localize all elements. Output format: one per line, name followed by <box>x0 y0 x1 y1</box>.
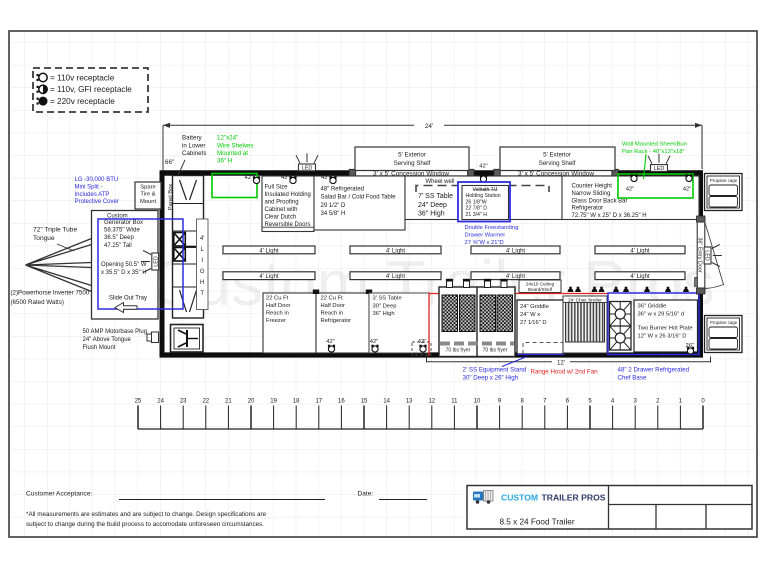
svg-text:66": 66" <box>165 159 174 166</box>
svg-text:Mount: Mount <box>140 199 157 205</box>
svg-text:5' Exterior: 5' Exterior <box>398 152 426 159</box>
svg-text:Serving Shelf: Serving Shelf <box>539 160 576 167</box>
svg-text:Wheel well: Wheel well <box>425 179 454 185</box>
svg-text:22: 22 <box>202 399 209 405</box>
svg-text:11: 11 <box>451 399 458 405</box>
svg-text:in Lower: in Lower <box>182 142 205 149</box>
svg-text:14: 14 <box>383 399 390 405</box>
svg-text:LED: LED <box>654 166 665 172</box>
svg-text:H: H <box>200 280 204 286</box>
svg-text:LED: LED <box>302 166 313 172</box>
svg-text:42": 42" <box>626 187 635 193</box>
svg-text:CUSTOM: CUSTOM <box>501 493 538 503</box>
svg-text:24' Char. broiler: 24' Char. broiler <box>568 297 602 303</box>
svg-text:Serving Shelf: Serving Shelf <box>394 160 431 167</box>
svg-text:12: 12 <box>428 399 435 405</box>
svg-text:= 110v, GFI receptacle: = 110v, GFI receptacle <box>50 85 132 94</box>
svg-text:23: 23 <box>180 399 187 405</box>
svg-text:Mounted at: Mounted at <box>217 150 248 157</box>
svg-text:LED: LED <box>153 256 159 267</box>
svg-text:Freezer: Freezer <box>266 318 286 324</box>
svg-text:18: 18 <box>293 399 300 405</box>
svg-text:36" Entry Door: 36" Entry Door <box>697 237 703 272</box>
svg-text:42": 42" <box>321 175 330 181</box>
svg-text:3' SS Table: 3' SS Table <box>373 295 402 301</box>
svg-text:22 7/8" D: 22 7/8" D <box>466 206 488 212</box>
svg-text:x 35.5" D x 35" H: x 35.5" D x 35" H <box>101 270 147 276</box>
svg-text:Spare: Spare <box>140 184 155 190</box>
svg-text:8.5 x 24 Food Trailer: 8.5 x 24 Food Trailer <box>499 518 574 527</box>
svg-text:4' Light: 4' Light <box>259 274 278 280</box>
svg-text:12': 12' <box>557 359 565 366</box>
svg-text:Cabinet with: Cabinet with <box>265 207 298 213</box>
svg-text:Generator Box: Generator Box <box>104 220 143 226</box>
svg-text:LG -30,000 BTU: LG -30,000 BTU <box>75 177 119 183</box>
svg-text:30" Deep: 30" Deep <box>373 303 397 309</box>
svg-text:Clear Dutch: Clear Dutch <box>265 215 297 221</box>
svg-text:4' Light: 4' Light <box>386 274 405 280</box>
svg-text:36" High: 36" High <box>373 311 395 317</box>
svg-text:72" Triple Tube: 72" Triple Tube <box>33 227 77 234</box>
svg-text:T: T <box>200 291 204 297</box>
svg-text:(2)Powerhorse Inverter 7500: (2)Powerhorse Inverter 7500 <box>11 290 90 297</box>
svg-text:2' SS Equipment Stand: 2' SS Equipment Stand <box>463 367 527 374</box>
svg-text:and Proofing: and Proofing <box>265 200 299 206</box>
svg-text:= 110v receptacle: = 110v receptacle <box>50 73 115 82</box>
svg-text:Reach in: Reach in <box>266 310 289 316</box>
svg-text:= 220v receptacle: = 220v receptacle <box>50 97 115 106</box>
svg-text:42": 42" <box>479 164 488 170</box>
svg-text:36" w x 29 5/16" d: 36" w x 29 5/16" d <box>638 311 685 317</box>
svg-text:Wall Mounted Sheet/Bun: Wall Mounted Sheet/Bun <box>622 141 687 147</box>
svg-text:Drawer Warmer: Drawer Warmer <box>465 232 506 238</box>
svg-text:Counter Height: Counter Height <box>572 184 613 190</box>
svg-text:24" Griddle: 24" Griddle <box>520 304 549 310</box>
svg-text:42": 42" <box>281 175 290 181</box>
svg-text:4' Light: 4' Light <box>259 248 278 254</box>
svg-text:17: 17 <box>315 399 322 405</box>
svg-text:50 AMP Motorbase Plug: 50 AMP Motorbase Plug <box>83 329 148 335</box>
svg-text:Slide Out Tray: Slide Out Tray <box>109 296 147 302</box>
svg-text:*All measurements are estimate: *All measurements are estimates and are … <box>26 511 267 518</box>
svg-text:4' Light: 4' Light <box>630 248 649 254</box>
svg-text:30" Deep x 26" High: 30" Deep x 26" High <box>463 375 519 382</box>
svg-text:19: 19 <box>270 399 277 405</box>
svg-text:4' Light: 4' Light <box>630 274 649 280</box>
svg-text:Opening 50.5" W: Opening 50.5" W <box>101 262 147 268</box>
svg-text:20: 20 <box>248 399 255 405</box>
svg-text:Range Hood w/ 2nd Fan: Range Hood w/ 2nd Fan <box>531 368 599 375</box>
svg-text:12" W x 26 3/16" D: 12" W x 26 3/16" D <box>638 333 687 339</box>
svg-text:5' Exterior: 5' Exterior <box>543 152 571 159</box>
svg-text:Salad Bar / Cold Food Table: Salad Bar / Cold Food Table <box>321 195 397 201</box>
svg-text:Mini Split -: Mini Split - <box>75 184 103 190</box>
svg-text:Half Door: Half Door <box>266 303 291 309</box>
svg-text:Insulated Holding: Insulated Holding <box>265 192 311 198</box>
svg-text:Board/Shelf: Board/Shelf <box>528 287 553 292</box>
svg-text:36" Griddle: 36" Griddle <box>638 303 667 309</box>
svg-text:48" 2 Drawer Refrigerated: 48" 2 Drawer Refrigerated <box>618 367 690 374</box>
svg-text:Battery: Battery <box>182 135 203 142</box>
svg-text:TRAILER PROS: TRAILER PROS <box>542 493 606 503</box>
svg-text:LED: LED <box>703 250 709 261</box>
svg-text:22 Cu Ft: 22 Cu Ft <box>266 295 289 301</box>
svg-text:70 lbs fryer: 70 lbs fryer <box>483 348 508 354</box>
svg-text:36.5" Deep: 36.5" Deep <box>104 235 134 241</box>
svg-text:34 5/8" H: 34 5/8" H <box>321 211 346 217</box>
svg-text:29 1/2" D: 29 1/2" D <box>321 203 346 209</box>
svg-text:(6500 Rated Watts): (6500 Rated Watts) <box>11 299 64 306</box>
svg-text:36" H: 36" H <box>217 158 232 165</box>
svg-text:Wire Shelves: Wire Shelves <box>217 142 253 149</box>
svg-text:Includes ATP: Includes ATP <box>75 192 110 198</box>
svg-text:G: G <box>200 269 205 275</box>
svg-text:Protective Cover: Protective Cover <box>75 199 119 205</box>
svg-text:Glass Door Back Bar: Glass Door Back Bar <box>572 198 628 204</box>
svg-text:42": 42" <box>244 175 253 181</box>
svg-text:Half Door: Half Door <box>321 303 346 309</box>
svg-text:Propane cage: Propane cage <box>710 320 738 325</box>
svg-text:4' Light: 4' Light <box>506 248 525 254</box>
svg-text:47.25" Tall: 47.25" Tall <box>104 243 132 249</box>
svg-text:subject to change during the b: subject to change during the build proce… <box>26 521 264 528</box>
svg-text:Propane cage: Propane cage <box>710 178 738 183</box>
svg-text:70 lbs fryer: 70 lbs fryer <box>446 348 471 354</box>
svg-text:Tongue: Tongue <box>33 235 55 242</box>
svg-text:4' Light: 4' Light <box>386 248 405 254</box>
svg-text:4' Light: 4' Light <box>506 274 525 280</box>
svg-text:Refrigerator: Refrigerator <box>572 206 604 212</box>
svg-text:4': 4' <box>200 236 204 242</box>
svg-text:27 ⅝"W x 21"D: 27 ⅝"W x 21"D <box>465 240 504 246</box>
svg-text:24" Above Tongue: 24" Above Tongue <box>83 337 132 343</box>
svg-text:24x10 Cutting: 24x10 Cutting <box>526 281 555 286</box>
svg-text:26 1/8"W: 26 1/8"W <box>466 199 487 205</box>
svg-text:48" Refrigerated: 48" Refrigerated <box>321 187 365 193</box>
svg-text:24': 24' <box>425 123 433 130</box>
svg-text:42": 42" <box>326 339 335 345</box>
svg-text:7' SS Table: 7' SS Table <box>418 193 453 200</box>
svg-text:Double Freestanding: Double Freestanding <box>465 225 519 231</box>
svg-text:Date:: Date: <box>358 491 374 498</box>
svg-text:42": 42" <box>370 339 379 345</box>
svg-text:22 Cu Ft: 22 Cu Ft <box>321 295 344 301</box>
svg-text:10: 10 <box>474 399 481 405</box>
svg-text:72.75" W x 25" D x 36.25" H: 72.75" W x 25" D x 36.25" H <box>572 213 647 219</box>
svg-text:21: 21 <box>225 399 232 405</box>
svg-text:Holding Station: Holding Station <box>466 193 501 199</box>
svg-text:24" Deep: 24" Deep <box>418 202 447 209</box>
svg-text:42": 42" <box>683 187 692 193</box>
svg-text:58.375" Wide: 58.375" Wide <box>104 228 140 234</box>
svg-text:Pan Rack - 40"x13"x18": Pan Rack - 40"x13"x18" <box>622 149 685 155</box>
svg-text:Cabinets: Cabinets <box>182 150 206 157</box>
svg-text:25: 25 <box>135 399 142 405</box>
svg-text:Customer Acceptance:: Customer Acceptance: <box>26 491 93 498</box>
svg-text:Flush Mount: Flush Mount <box>83 345 116 351</box>
svg-text:16: 16 <box>338 399 345 405</box>
svg-text:Narrow Sliding: Narrow Sliding <box>572 191 611 197</box>
svg-text:Refrigerator: Refrigerator <box>321 318 352 324</box>
svg-text:24: 24 <box>157 399 164 405</box>
svg-text:Tire &: Tire & <box>140 192 155 198</box>
svg-text:Reversible Doors: Reversible Doors <box>265 222 311 228</box>
svg-text:12"x24": 12"x24" <box>217 135 238 142</box>
svg-text:Chef Base: Chef Base <box>618 375 647 382</box>
svg-text:Full Size: Full Size <box>265 185 289 191</box>
svg-text:24" W x: 24" W x <box>520 312 540 318</box>
svg-text:Reach in: Reach in <box>321 310 344 316</box>
svg-text:15: 15 <box>361 399 368 405</box>
svg-text:27 1⁄16" D: 27 1⁄16" D <box>520 320 547 326</box>
svg-text:13: 13 <box>406 399 413 405</box>
svg-text:Two Burner Hot Plate: Two Burner Hot Plate <box>638 325 693 331</box>
svg-text:Panel Box: Panel Box <box>168 184 174 211</box>
svg-text:21 3/4" H: 21 3/4" H <box>466 212 488 218</box>
svg-text:36" High: 36" High <box>418 211 445 218</box>
